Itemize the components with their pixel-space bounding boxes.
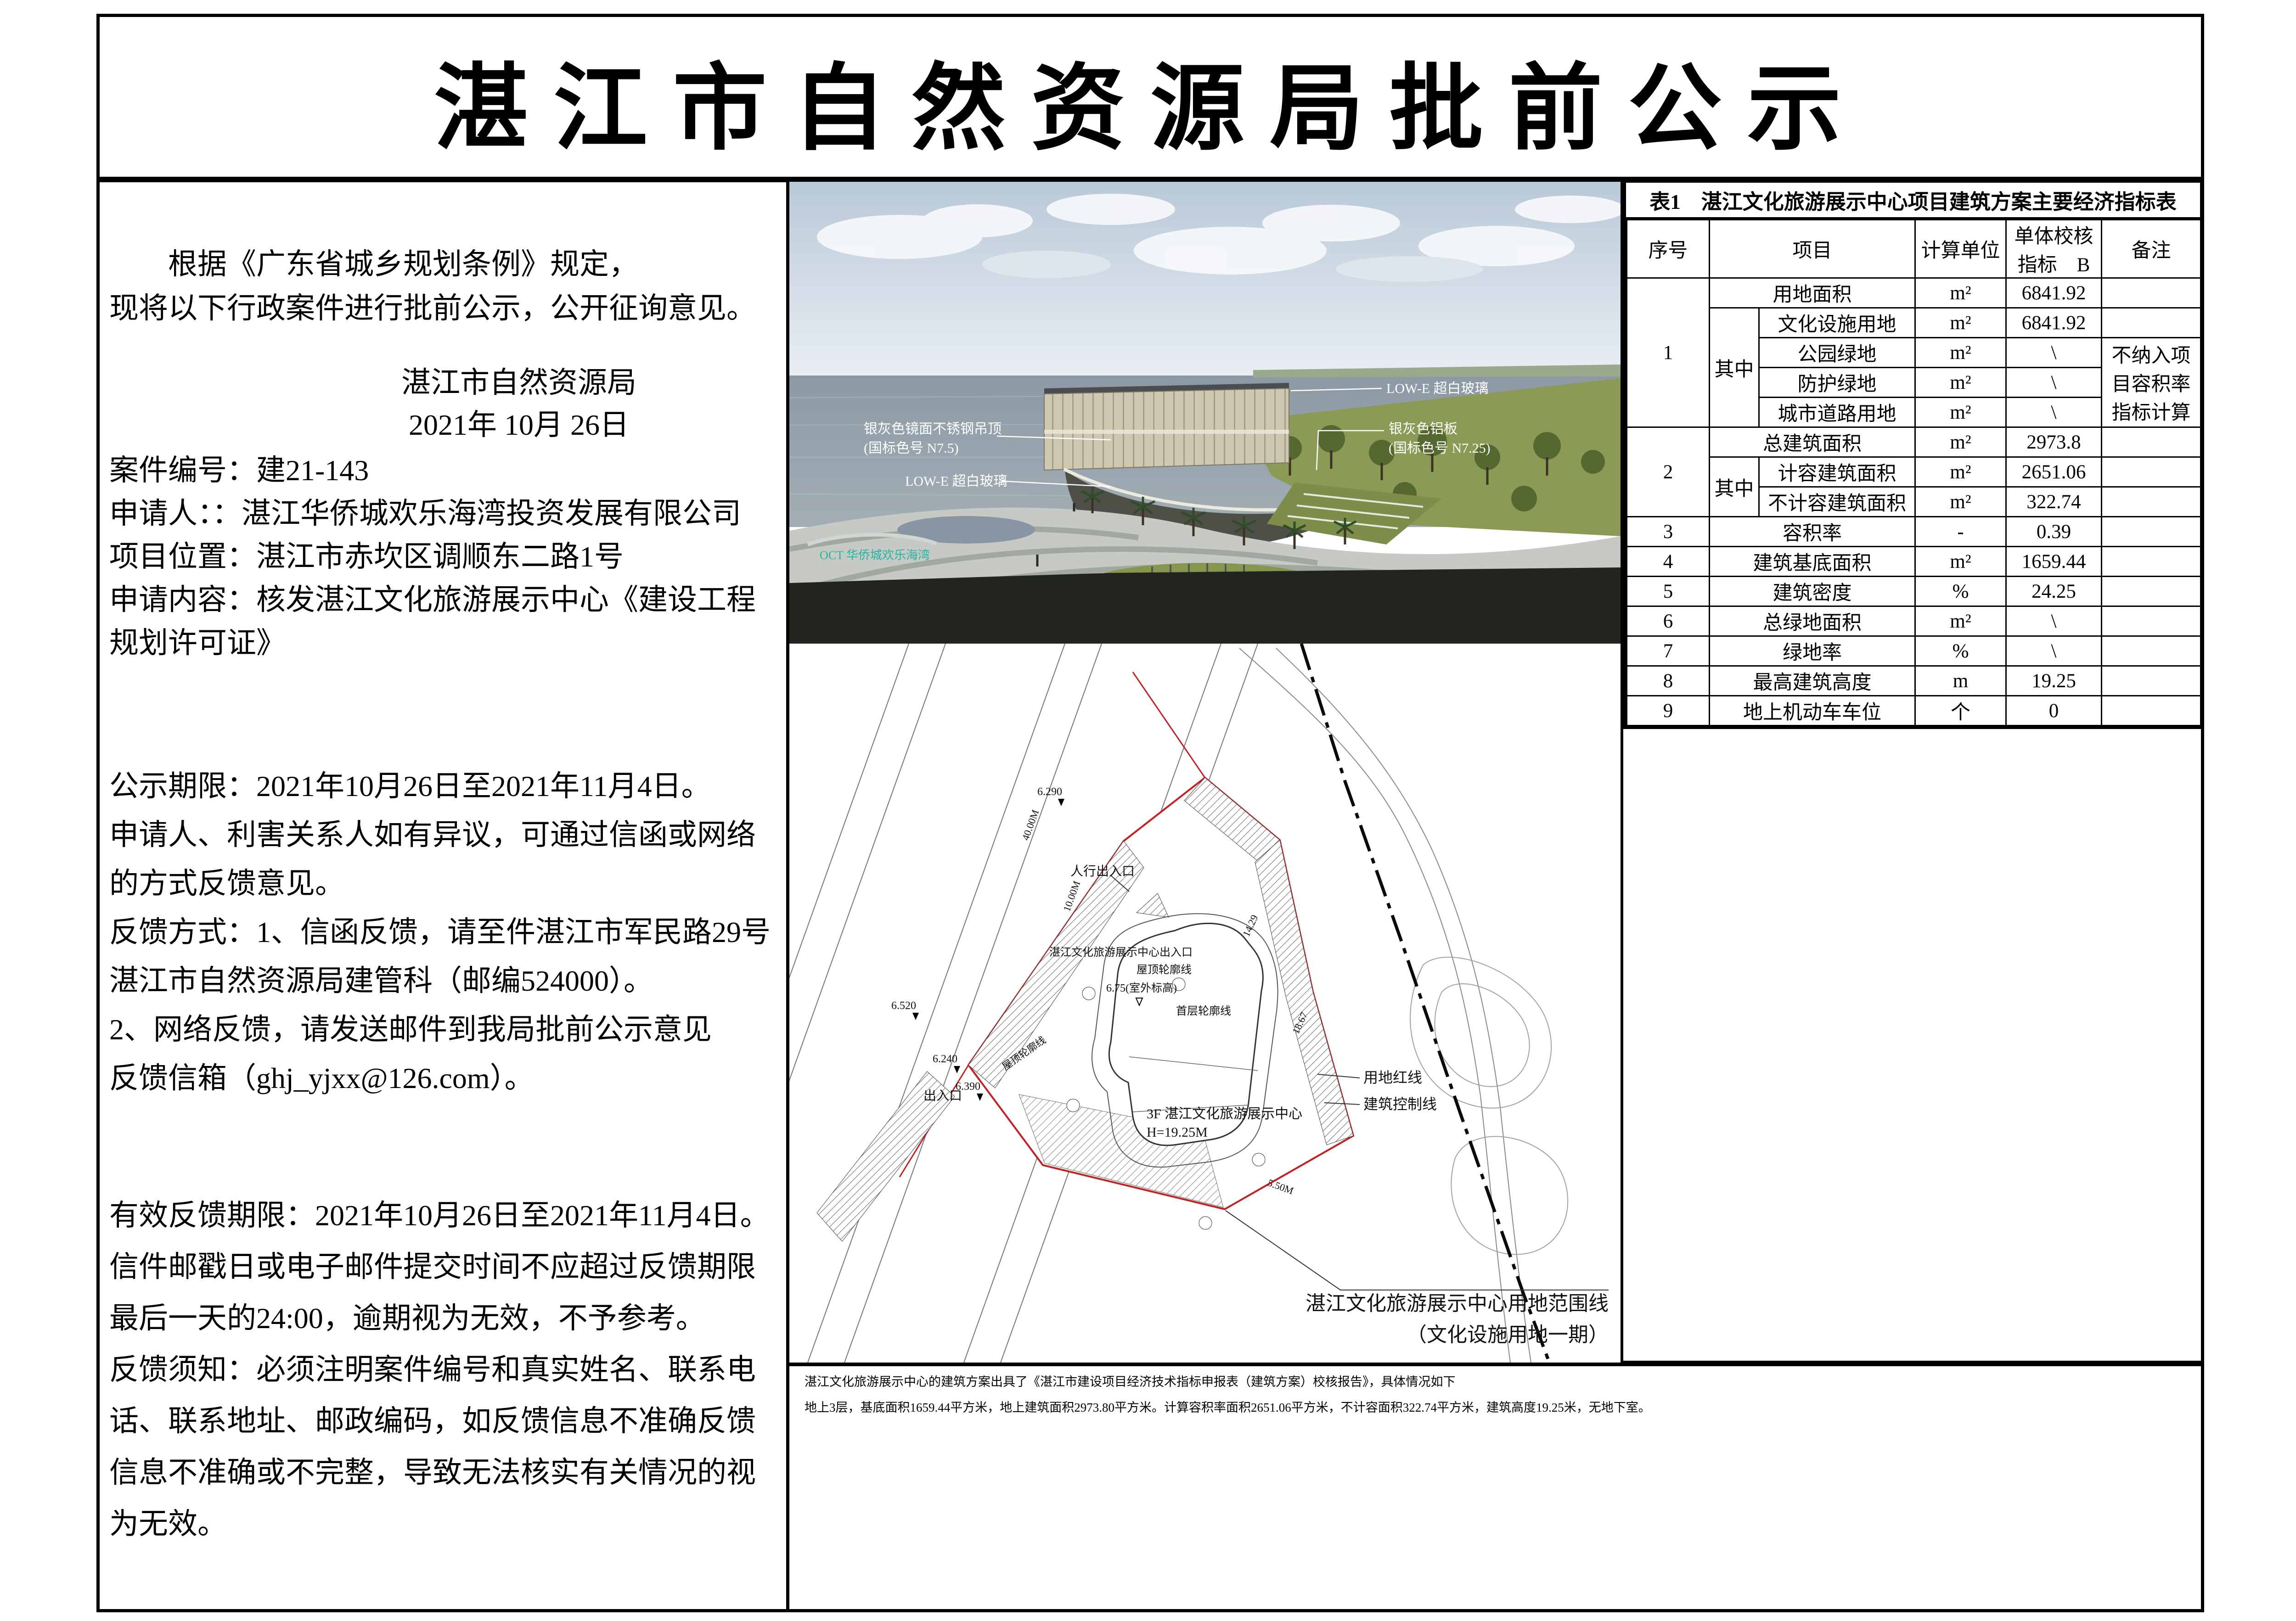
- table-cell: 3: [1627, 517, 1710, 547]
- table-cell: [2102, 278, 2201, 308]
- building-rendering-image: OCT 华侨城欢乐海湾 LOW-E 超白玻璃 银灰色镜面不锈钢吊顶 (国标色号 …: [789, 182, 1621, 644]
- notice-publicity-info: 公示期限：2021年10月26日至2021年11月4日。 申请人、利害关系人如有…: [109, 762, 782, 1103]
- table-cell: \: [2006, 636, 2102, 666]
- table-cell: 建筑密度: [1710, 577, 1915, 606]
- header-remark: 备注: [2102, 220, 2201, 278]
- table-cell: 6841.92: [2006, 278, 2102, 308]
- table-cell: -: [1915, 517, 2006, 547]
- table-cell: 1659.44: [2006, 547, 2102, 577]
- table-cell: m²: [1915, 398, 2006, 427]
- annotation-glass-bottom: LOW-E 超白玻璃: [905, 474, 1007, 489]
- table-cell: 其中: [1710, 457, 1759, 517]
- table-row: 1用地面积m²6841.92: [1627, 278, 2201, 308]
- label-elev-1: 6.290: [1037, 786, 1062, 798]
- table-cell: 19.25: [2006, 666, 2102, 696]
- label-ped-entrance: 人行出入口: [1070, 864, 1135, 879]
- table-cell: 绿地率: [1710, 636, 1915, 666]
- label-elev-3: 6.240: [933, 1053, 957, 1065]
- table-header-row: 序号 项目 计算单位 单体校核 指标 B 备注: [1627, 220, 2201, 278]
- indicator-table-title: 表1 湛江文化旅游展示中心项目建筑方案主要经济指标表: [1626, 183, 2200, 219]
- header-no: 序号: [1627, 220, 1710, 278]
- table-cell: m²: [1915, 338, 2006, 368]
- label-scope-line1: 湛江文化旅游展示中心用地范围线: [1306, 1292, 1609, 1315]
- annotation-glass-top: LOW-E 超白玻璃: [1386, 381, 1488, 396]
- table-row: 7绿地率%\: [1627, 636, 2201, 666]
- table-cell: 322.74: [2006, 487, 2102, 517]
- caption-line-2: 地上3层，基底面积1659.44平方米，地上建筑面积2973.80平方米。计算容…: [805, 1397, 2196, 1415]
- header-unit: 计算单位: [1915, 220, 2006, 278]
- table-cell: 24.25: [2006, 577, 2102, 606]
- upper-box-band: [1044, 430, 1289, 434]
- table-cell: 总建筑面积: [1710, 427, 1915, 457]
- label-red-line: 用地红线: [1363, 1069, 1422, 1086]
- table-cell: 城市道路用地: [1759, 398, 1915, 427]
- label-outdoor-elev: 6.75(室外标高): [1106, 982, 1177, 994]
- entry-sign-text: OCT 华侨城欢乐海湾: [820, 549, 930, 562]
- page-title: 湛江市自然资源局批前公示: [138, 32, 2163, 168]
- table-cell: m²: [1915, 308, 2006, 338]
- label-elev-4: 6.390: [956, 1081, 980, 1093]
- table-cell: \: [2006, 606, 2102, 636]
- label-control-line: 建筑控制线: [1363, 1096, 1437, 1112]
- table-cell: 文化设施用地: [1759, 308, 1915, 338]
- table-cell: \: [2006, 368, 2102, 398]
- table-row: 8最高建筑高度m19.25: [1627, 666, 2201, 696]
- table-cell: 6841.92: [2006, 308, 2102, 338]
- table-cell: m²: [1915, 278, 2006, 308]
- table-cell: %: [1915, 577, 2006, 606]
- caption-line-1: 湛江文化旅游展示中心的建筑方案出具了《湛江市建设项目经济技术指标申报表（建筑方案…: [805, 1372, 2196, 1390]
- notice-intro-paragraph: 根据《广东省城乡规划条例》规定， 现将以下行政案件进行批前公示，公开征询意见。: [109, 242, 782, 331]
- notice-case-info: 案件编号：建21-143 申请人：：湛江华侨城欢乐海湾投资发展有限公司 项目位置…: [109, 449, 782, 665]
- table-cell: \: [2006, 398, 2102, 427]
- label-building-name: 3F 湛江文化旅游展示中心: [1147, 1106, 1302, 1122]
- table-cell: m²: [1915, 487, 2006, 517]
- table-cell: m²: [1915, 457, 2006, 487]
- table-cell: 1: [1627, 278, 1710, 427]
- table-cell: 最高建筑高度: [1710, 666, 1915, 696]
- table-cell: 2651.06: [2006, 457, 2102, 487]
- table-cell: 个: [1915, 696, 2006, 726]
- site-plan-drawing: 人行出入口 湛江文化旅游展示中心出入口 屋顶轮廓线 6.75(室外标高) 首层轮…: [789, 644, 1621, 1363]
- label-building-height: H=19.25M: [1147, 1125, 1208, 1140]
- indicator-table-body: 1用地面积m²6841.92其中文化设施用地m²6841.92公园绿地m²\不纳…: [1627, 278, 2201, 726]
- table-cell: 用地面积: [1710, 278, 1915, 308]
- table-row: 3容积率-0.39: [1627, 517, 2201, 547]
- label-roof-outline: 屋顶轮廓线: [1137, 964, 1192, 976]
- table-cell: m: [1915, 666, 2006, 696]
- table-cell: 6: [1627, 606, 1710, 636]
- table-cell: [2102, 696, 2201, 726]
- table-cell: 7: [1627, 636, 1710, 666]
- table-cell: 防护绿地: [1759, 368, 1915, 398]
- table-cell: 5: [1627, 577, 1710, 606]
- table-row: 4建筑基底面积m²1659.44: [1627, 547, 2201, 577]
- table-cell: 容积率: [1710, 517, 1915, 547]
- table-cell: 建筑基底面积: [1710, 547, 1915, 577]
- label-elev-2: 6.520: [891, 1000, 916, 1012]
- table-cell: m²: [1915, 368, 2006, 398]
- table-cell: [2102, 577, 2201, 606]
- upper-glass-box: [1044, 388, 1289, 470]
- table-row: 其中计容建筑面积m²2651.06: [1627, 457, 2201, 487]
- table-cell: 地上机动车车位: [1710, 696, 1915, 726]
- table-cell: 其中: [1710, 308, 1759, 427]
- table-cell: %: [1915, 636, 2006, 666]
- table-cell: 不计容建筑面积: [1759, 487, 1915, 517]
- table-cell: [2102, 487, 2201, 517]
- annotation-alum-line2: (国标色号 N7.25): [1389, 441, 1491, 456]
- table-cell: 计容建筑面积: [1759, 457, 1915, 487]
- table-cell: [2102, 547, 2201, 577]
- left-column-divider: [786, 179, 789, 1610]
- notice-agency-date: 湛江市自然资源局 2021年 10月 26日: [294, 362, 744, 446]
- annotation-ceiling-line2: (国标色号 N7.5): [864, 441, 959, 456]
- label-scope-line2: （文化设施用地一期）: [1407, 1324, 1609, 1346]
- label-first-floor-outline: 首层轮廓线: [1176, 1005, 1231, 1017]
- table-cell: [2102, 666, 2201, 696]
- right-column-divider: [1620, 179, 1623, 1366]
- table-cell: \: [2006, 338, 2102, 368]
- table-cell: [2102, 517, 2201, 547]
- table-cell: [2102, 457, 2201, 487]
- table-cell: 8: [1627, 666, 1710, 696]
- label-center-entrance: 湛江文化旅游展示中心出入口: [1049, 946, 1193, 959]
- notice-validity-info: 有效反馈期限：2021年10月26日至2021年11月4日。 信件邮戳日或电子邮…: [109, 1190, 782, 1550]
- table-row: 6总绿地面积m²\: [1627, 606, 2201, 636]
- table-cell: 0.39: [2006, 517, 2102, 547]
- sky: [789, 182, 1621, 376]
- table-cell: 0: [2006, 696, 2102, 726]
- indicator-table-container: 表1 湛江文化旅游展示中心项目建筑方案主要经济指标表 序号 项目 计算单位 单体…: [1623, 180, 2203, 729]
- table-row: 9地上机动车车位个0: [1627, 696, 2201, 726]
- table-row: 5建筑密度%24.25: [1627, 577, 2201, 606]
- table-cell: m²: [1915, 606, 2006, 636]
- table-cell: [2102, 636, 2201, 666]
- table-cell: 总绿地面积: [1710, 606, 1915, 636]
- annotation-alum-line1: 银灰色铝板: [1389, 421, 1458, 437]
- table-cell: 9: [1627, 696, 1710, 726]
- table-cell: 2: [1627, 427, 1710, 517]
- indicator-table: 序号 项目 计算单位 单体校核 指标 B 备注 1用地面积m²6841.92其中…: [1626, 219, 2201, 726]
- annotation-ceiling-line1: 银灰色镜面不锈钢吊顶: [864, 421, 1002, 437]
- table-cell: m²: [1915, 427, 2006, 457]
- table-cell: 公园绿地: [1759, 338, 1915, 368]
- table-cell: [2102, 427, 2201, 457]
- table-cell: 不纳入项 目容积率 指标计算: [2102, 338, 2201, 427]
- table-cell: 2973.8: [2006, 427, 2102, 457]
- table-row: 其中文化设施用地m²6841.92: [1627, 308, 2201, 338]
- header-item: 项目: [1710, 220, 1915, 278]
- header-value: 单体校核 指标 B: [2006, 220, 2102, 278]
- notice-page: { "page_title": "湛江市自然资源局批前公示", "notice"…: [0, 0, 2296, 1621]
- table-cell: [2102, 308, 2201, 338]
- table-cell: 4: [1627, 547, 1710, 577]
- table-cell: [2102, 606, 2201, 636]
- table-row: 2总建筑面积m²2973.8: [1627, 427, 2201, 457]
- table-cell: m²: [1915, 547, 2006, 577]
